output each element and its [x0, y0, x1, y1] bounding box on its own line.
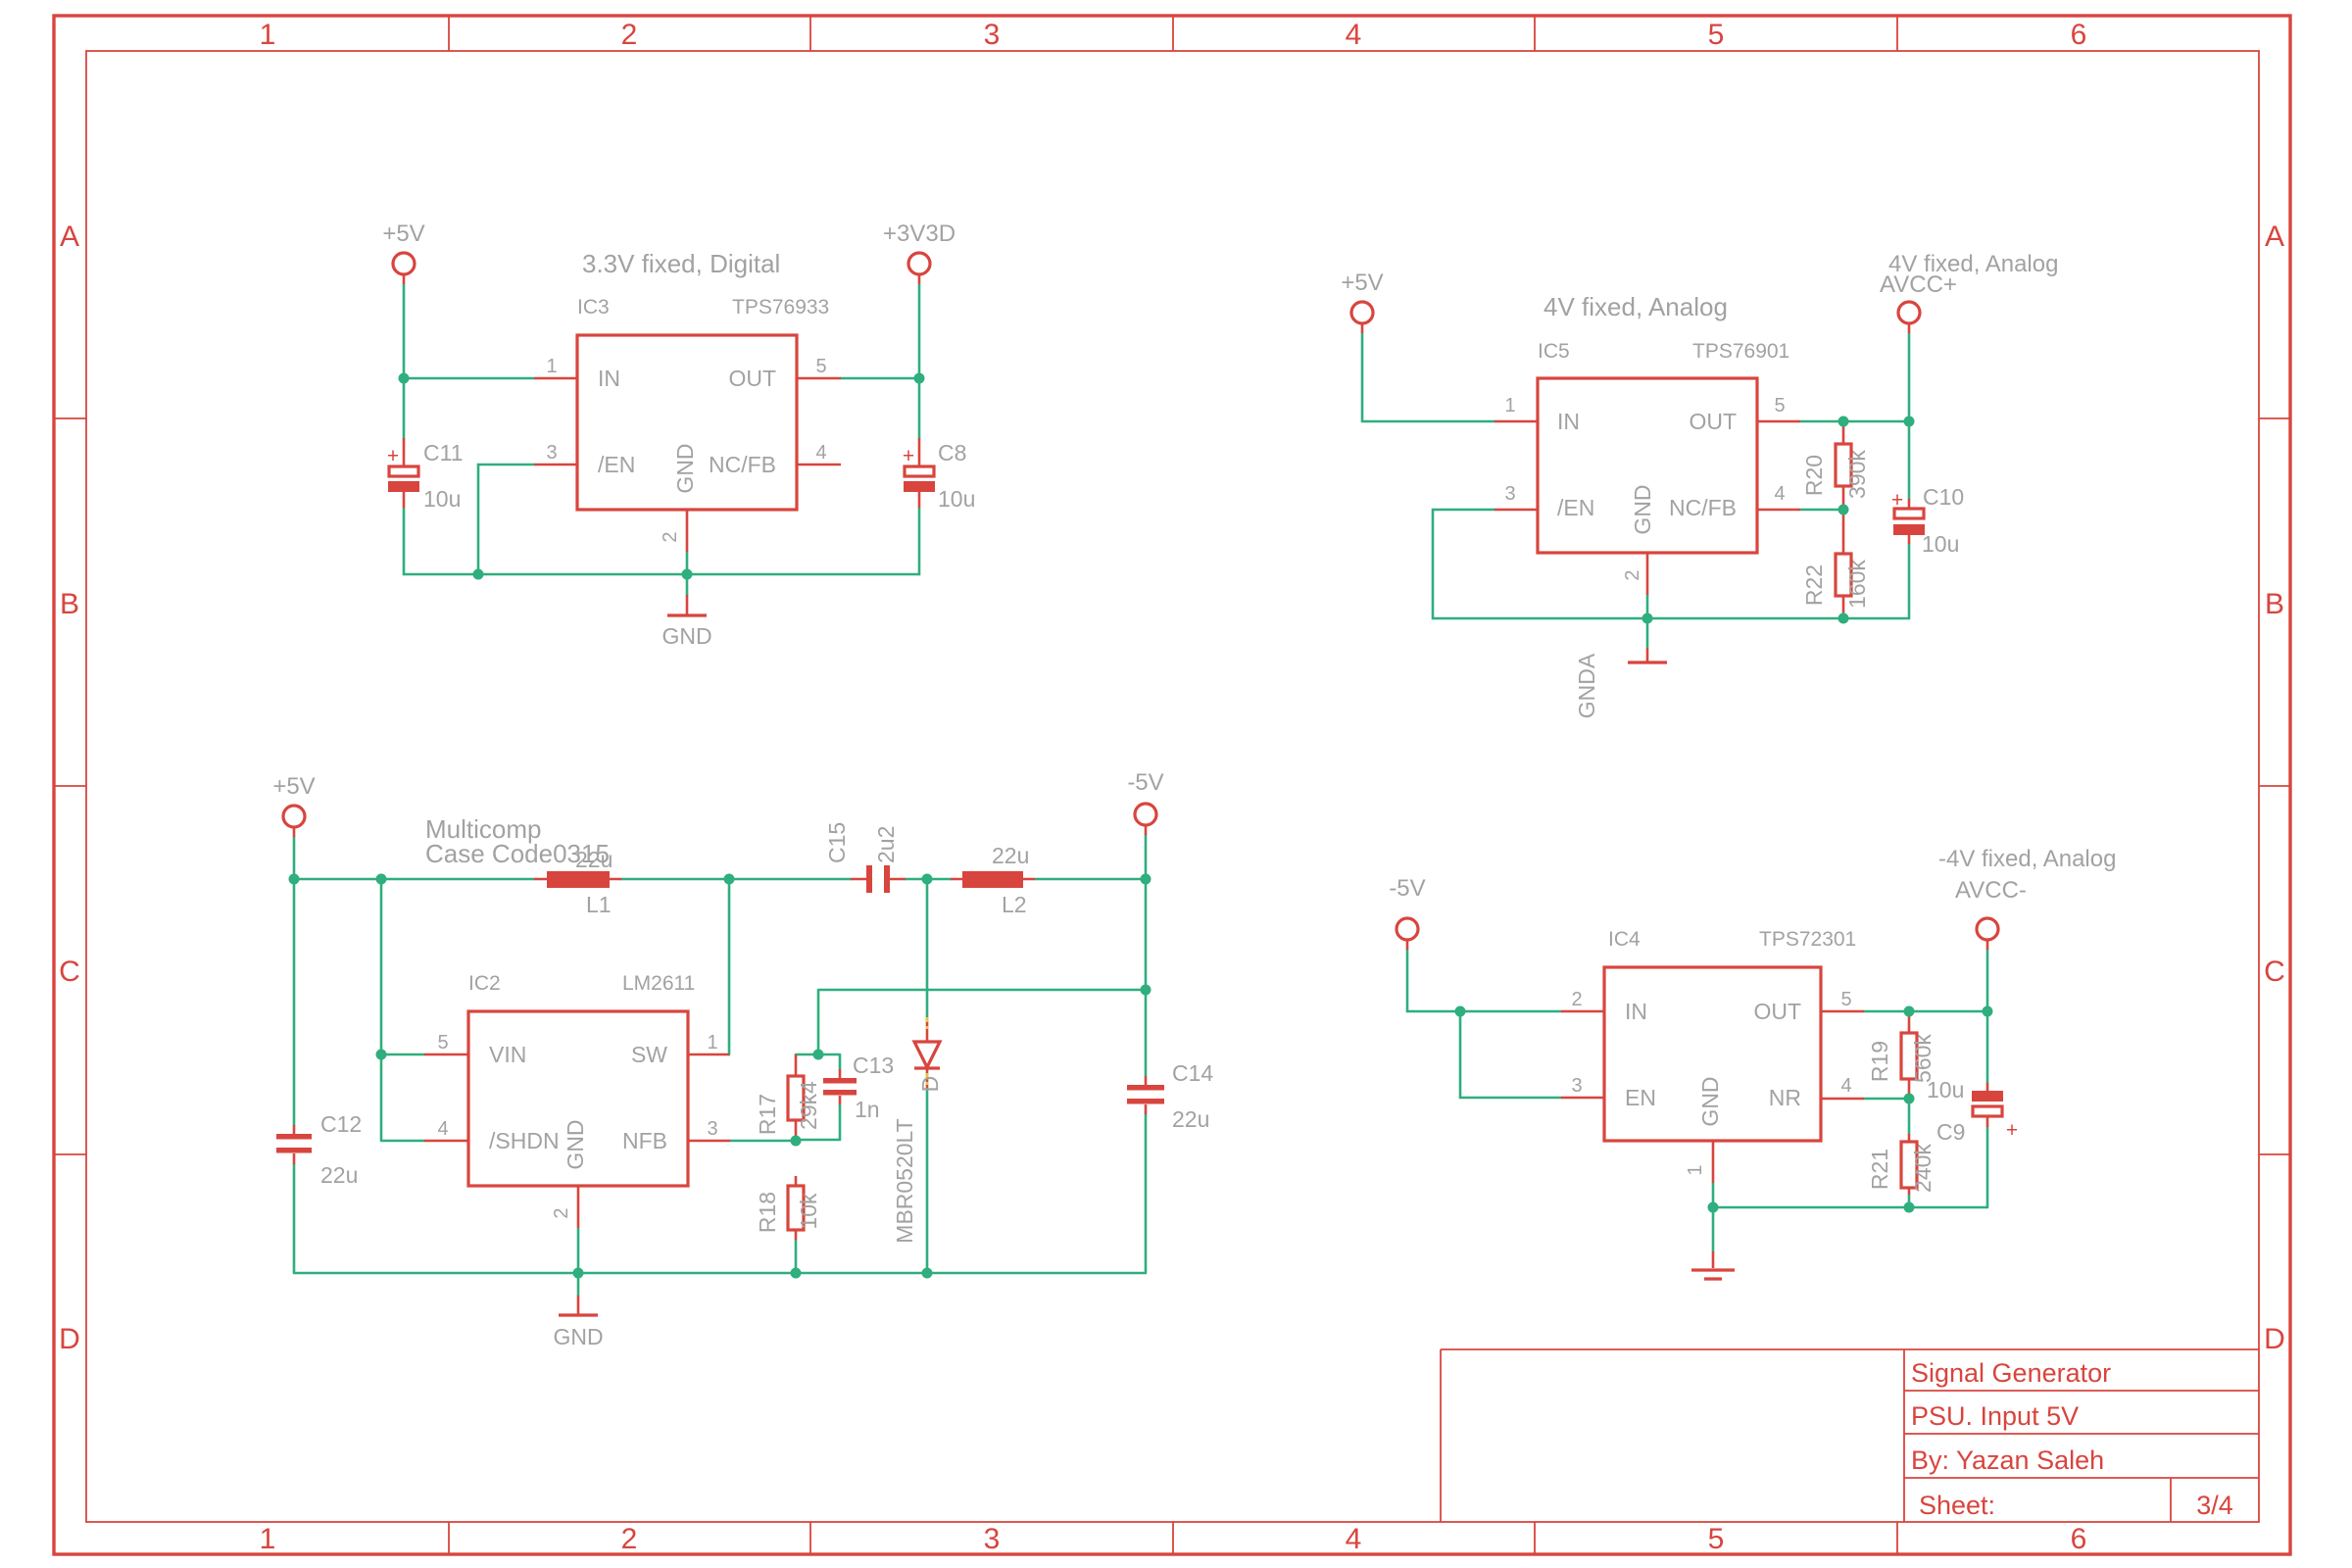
ic3-pin-ncfb: NC/FB — [709, 452, 776, 477]
ic4-pin-out: OUT — [1753, 999, 1801, 1024]
port-label-5v-ic5: +5V — [1341, 269, 1383, 296]
frame-col-4-top: 4 — [1346, 19, 1362, 51]
schematic-label: 2 — [660, 531, 681, 542]
frame-row-D-right: D — [2264, 1323, 2285, 1355]
port-5v-ic5[interactable] — [1351, 302, 1373, 323]
port-label-3v3d: +3V3D — [883, 220, 955, 247]
title-project: Signal Generator — [1911, 1358, 2111, 1388]
frame-row-A-right: A — [2265, 220, 2284, 253]
c13-value: 1n — [855, 1097, 880, 1122]
r21-ref: R21 — [1867, 1149, 1892, 1190]
schematic-label: 4 — [815, 442, 826, 464]
avccm-note: -4V fixed, Analog — [1938, 846, 2116, 872]
ic3-pin-in: IN — [598, 366, 620, 391]
title-sheet-value: 3/4 — [2196, 1491, 2233, 1520]
inductor-l2[interactable] — [962, 871, 1023, 888]
capacitor-c9[interactable] — [1972, 1091, 2003, 1116]
frame-row-B-left: B — [60, 588, 79, 620]
c15-value: 2u2 — [873, 826, 899, 863]
r19-value: 560k — [1910, 1034, 1935, 1083]
l2-ref: L2 — [1002, 892, 1027, 917]
schematic-label: 1 — [1685, 1164, 1706, 1175]
ic4-pin-nr: NR — [1769, 1085, 1801, 1110]
capacitor-c10[interactable] — [1893, 509, 1925, 535]
title-block: Signal Generator PSU. Input 5V By: Yazan… — [1441, 1349, 2259, 1522]
frame-col-3-top: 3 — [984, 19, 1001, 51]
c9-ref: C9 — [1936, 1119, 1965, 1145]
schematic-label: 3 — [546, 442, 557, 464]
ic2-part: LM2611 — [622, 972, 695, 995]
c8-value: 10u — [938, 486, 975, 512]
gnd-label-ic3: GND — [661, 623, 711, 649]
frame-col-5-top: 5 — [1708, 19, 1725, 51]
r22-value: 160k — [1844, 560, 1870, 609]
ic2-pin-sw: SW — [631, 1042, 667, 1067]
ic3-ref: IC3 — [577, 296, 610, 318]
c14-ref: C14 — [1172, 1060, 1213, 1086]
diode-mbr0520lt[interactable] — [914, 1017, 940, 1085]
frame-col-2-bottom: 2 — [621, 1523, 638, 1555]
ic2-pin-shdn: /SHDN — [489, 1128, 560, 1153]
schematic-labels: +5V3.3V fixed, DigitalIC3TPS76933INOUT/E… — [272, 220, 2116, 1349]
r18-value: 10k — [796, 1193, 821, 1230]
capacitor-c15[interactable] — [866, 865, 890, 893]
c9-value: 10u — [1927, 1077, 1964, 1102]
c11-value: 10u — [423, 486, 461, 512]
ic4-pin-gnd: GND — [1697, 1076, 1723, 1126]
schematic-label: 1 — [546, 356, 557, 377]
circuit-ldo-digital-3v3 — [388, 253, 935, 615]
schematic-sheet: 112233445566AABBCCDD Signal Generator PS… — [0, 0, 2352, 1568]
frame-labels: 112233445566AABBCCDD — [59, 19, 2285, 1555]
frame-col-1-bottom: 1 — [260, 1523, 276, 1555]
pin-stubs — [1362, 323, 1909, 612]
schematic-canvas: 112233445566AABBCCDD Signal Generator PS… — [0, 0, 2352, 1568]
schematic-label: + — [387, 445, 399, 467]
ic2-pin-nfb: NFB — [622, 1128, 667, 1153]
frame-col-6-bottom: 6 — [2071, 1523, 2087, 1555]
schematic-label: 3 — [1571, 1075, 1582, 1097]
gnd-label-ic2: GND — [553, 1324, 603, 1349]
schematic-label: 5 — [1840, 989, 1851, 1010]
frame-row-C-left: C — [59, 955, 80, 988]
diode-ref: D — [917, 1076, 943, 1093]
ic4-part: TPS72301 — [1759, 928, 1856, 951]
c11-ref: C11 — [423, 440, 464, 465]
schematic-label: 3 — [1504, 483, 1515, 505]
ic3-part: TPS76933 — [732, 296, 829, 318]
c15-ref: C15 — [824, 822, 850, 863]
capacitor-c12[interactable] — [276, 1134, 312, 1153]
title-sheet-label: Sheet: — [1919, 1491, 1995, 1520]
schematic-label: 5 — [437, 1032, 448, 1053]
c10-ref: C10 — [1923, 484, 1964, 510]
frame-row-B-right: B — [2265, 588, 2284, 620]
frame-col-1-top: 1 — [260, 19, 276, 51]
diode-part: MBR0520LT — [892, 1118, 917, 1243]
ic5-part: TPS76901 — [1692, 340, 1789, 363]
frame-col-3-bottom: 3 — [984, 1523, 1001, 1555]
circuit-inverting-converter — [276, 804, 1164, 1315]
port-label-neg5v-ic4: -5V — [1389, 875, 1425, 902]
schematic-label: 4 — [1840, 1075, 1851, 1097]
ic3-pin-gnd: GND — [672, 443, 698, 493]
r22-ref: R22 — [1801, 564, 1827, 606]
frame-row-C-right: C — [2264, 955, 2285, 988]
l2-value: 22u — [992, 843, 1029, 868]
capacitor-c11[interactable] — [388, 466, 419, 492]
ic5-pin-en: /EN — [1557, 495, 1594, 520]
frame-col-6-top: 6 — [2071, 19, 2087, 51]
ic5-pin-in: IN — [1557, 409, 1580, 434]
ic4-pin-in: IN — [1625, 999, 1647, 1024]
ic5-pin-gnd: GND — [1630, 484, 1655, 534]
schematic-label: 1 — [1504, 395, 1515, 416]
r17-value: 29k4 — [796, 1081, 821, 1130]
schematic-label: + — [903, 445, 914, 467]
ic5-ref: IC5 — [1538, 340, 1570, 363]
c12-value: 22u — [320, 1162, 358, 1188]
circuit-title-analog-pos: 4V fixed, Analog — [1543, 292, 1728, 321]
port-5v-ic2[interactable] — [283, 806, 305, 827]
port-label-5v-ic2: +5V — [272, 773, 315, 800]
frame-row-D-left: D — [59, 1323, 80, 1355]
r20-value: 390k — [1844, 450, 1870, 499]
capacitor-c8[interactable] — [904, 466, 935, 492]
circuit-title-digital: 3.3V fixed, Digital — [582, 249, 780, 278]
ic3-pin-out: OUT — [728, 366, 776, 391]
port-neg5v-ic4[interactable] — [1396, 918, 1418, 940]
schematic-label: + — [1891, 489, 1903, 512]
c8-ref: C8 — [938, 440, 966, 465]
port-5v-ic3[interactable] — [393, 253, 415, 274]
c14-value: 22u — [1172, 1106, 1209, 1132]
frame-row-A-left: A — [60, 220, 79, 253]
frame-col-2-top: 2 — [621, 19, 638, 51]
schematic-label: 2 — [1571, 989, 1582, 1010]
ic5-pin-ncfb: NC/FB — [1669, 495, 1737, 520]
port-avcc-plus[interactable] — [1898, 302, 1920, 323]
schematic-label: + — [2006, 1119, 2018, 1142]
r20-ref: R20 — [1801, 455, 1827, 496]
ic2-ref: IC2 — [468, 972, 501, 995]
gnd-symbol-ic4[interactable] — [1691, 1270, 1735, 1279]
schematic-label: 2 — [551, 1207, 572, 1218]
r18-ref: R18 — [755, 1192, 780, 1233]
c13-ref: C13 — [853, 1053, 894, 1078]
schematic-label: 5 — [815, 356, 826, 377]
ic4-pin-en: EN — [1625, 1085, 1656, 1110]
c10-value: 10u — [1922, 531, 1959, 557]
c12-ref: C12 — [320, 1111, 362, 1137]
port-3v3d[interactable] — [908, 253, 930, 274]
frame-col-4-bottom: 4 — [1346, 1523, 1362, 1555]
capacitor-c13[interactable] — [823, 1078, 857, 1096]
ic4-ref: IC4 — [1608, 928, 1641, 951]
port-label-5v-ic3: +5V — [382, 220, 424, 247]
ic5-pin-out: OUT — [1689, 409, 1737, 434]
gnda-label: GNDA — [1574, 653, 1599, 718]
l1-ref: L1 — [586, 892, 612, 917]
title-author: By: Yazan Saleh — [1911, 1445, 2104, 1475]
l1-value: 22u — [575, 847, 612, 872]
gnd-symbol-ic3[interactable] — [667, 595, 707, 615]
capacitor-c14[interactable] — [1127, 1085, 1164, 1104]
port-avcc-minus[interactable] — [1977, 918, 1998, 940]
ic2-pin-vin: VIN — [489, 1042, 526, 1067]
frame-col-5-bottom: 5 — [1708, 1523, 1725, 1555]
schematic-label: 4 — [437, 1118, 448, 1140]
schematic-label: 5 — [1774, 395, 1785, 416]
r19-ref: R19 — [1867, 1041, 1892, 1082]
gnda-symbol[interactable] — [1628, 648, 1667, 662]
r17-ref: R17 — [755, 1094, 780, 1135]
port-label-neg5v-out: -5V — [1127, 769, 1163, 796]
avccm-label: AVCC- — [1955, 877, 2027, 904]
ic2-pin-gnd: GND — [563, 1119, 588, 1169]
schematic-label: 3 — [707, 1118, 717, 1140]
junction-dots — [289, 874, 1151, 1279]
r21-value: 240k — [1910, 1144, 1935, 1193]
avccp-label: AVCC+ — [1880, 271, 1957, 298]
schematic-label: 1 — [707, 1032, 717, 1053]
inductor-l1[interactable] — [547, 871, 610, 888]
schematic-label: 4 — [1774, 483, 1785, 505]
circuit-ldo-analog-4v — [1351, 302, 1925, 662]
port-neg5v-out[interactable] — [1135, 804, 1156, 825]
ic3-pin-en: /EN — [598, 452, 635, 477]
title-subtitle: PSU. Input 5V — [1911, 1401, 2079, 1431]
net-wires — [404, 284, 919, 595]
schematic-label: 2 — [1622, 569, 1643, 580]
